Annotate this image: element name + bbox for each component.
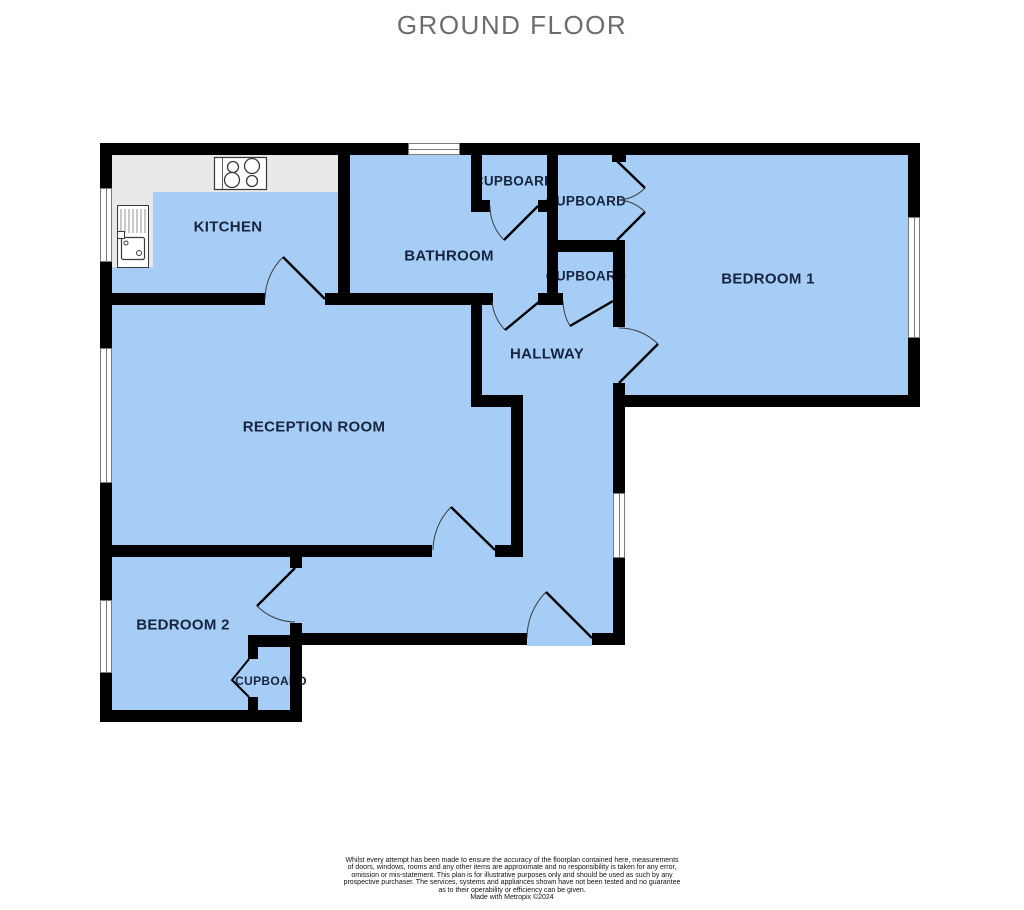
window-pane-line (106, 349, 107, 482)
room-label-bedroom1: BEDROOM 1 (721, 271, 815, 288)
kitchen-counter-left (112, 155, 153, 267)
window (100, 348, 112, 483)
wall (338, 155, 350, 305)
room-label-bedroom2: BEDROOM 2 (136, 617, 230, 634)
wall (613, 395, 920, 407)
room-label-bathroom: BATHROOM (404, 248, 494, 265)
window-pane-line (619, 494, 620, 557)
wall (471, 293, 482, 407)
floorplan-canvas: GROUND FLOOR KITCHEN BATHROOM CUPBOARD C… (0, 0, 1024, 910)
window (100, 188, 112, 262)
wall (511, 395, 523, 557)
wall (471, 200, 490, 212)
wall (100, 710, 302, 722)
disclaimer-line: of doors, windows, rooms and any other i… (0, 864, 1024, 871)
room-label-hallway: HALLWAY (510, 346, 584, 363)
window-pane-line (914, 218, 915, 337)
disclaimer-line: omission or mis-statement. This plan is … (0, 872, 1024, 879)
wall (612, 155, 626, 162)
wall (613, 240, 625, 327)
disclaimer-line: Whilst every attempt has been made to en… (0, 857, 1024, 864)
window-pane-line (106, 189, 107, 261)
room-label-cupboard-top: CUPBOARD (474, 174, 554, 189)
wall (325, 293, 493, 305)
wall (248, 697, 258, 712)
wall (302, 633, 527, 645)
floor-area-corridor-vertical (523, 395, 613, 635)
wall (592, 633, 625, 645)
window (908, 217, 920, 338)
wall (613, 383, 625, 407)
credit-line: Made with Metropix ©2024 (0, 894, 1024, 901)
window-pane-line (106, 601, 107, 672)
wall (248, 635, 258, 659)
window (408, 143, 460, 155)
wall (100, 293, 265, 305)
wall (547, 143, 558, 303)
window-pane-line (409, 149, 459, 150)
disclaimer: Whilst every attempt has been made to en… (0, 857, 1024, 901)
disclaimer-line: prospective purchaser. The services, sys… (0, 879, 1024, 886)
window (613, 493, 625, 558)
wall (100, 143, 920, 155)
disclaimer-line: as to their operability or efficiency ca… (0, 887, 1024, 894)
window (100, 600, 112, 673)
wall (100, 545, 432, 557)
floor-area-entrance-opening (527, 633, 592, 646)
room-label-kitchen: KITCHEN (194, 219, 263, 236)
room-label-reception: RECEPTION ROOM (243, 419, 386, 436)
page-title: GROUND FLOOR (0, 10, 1024, 41)
